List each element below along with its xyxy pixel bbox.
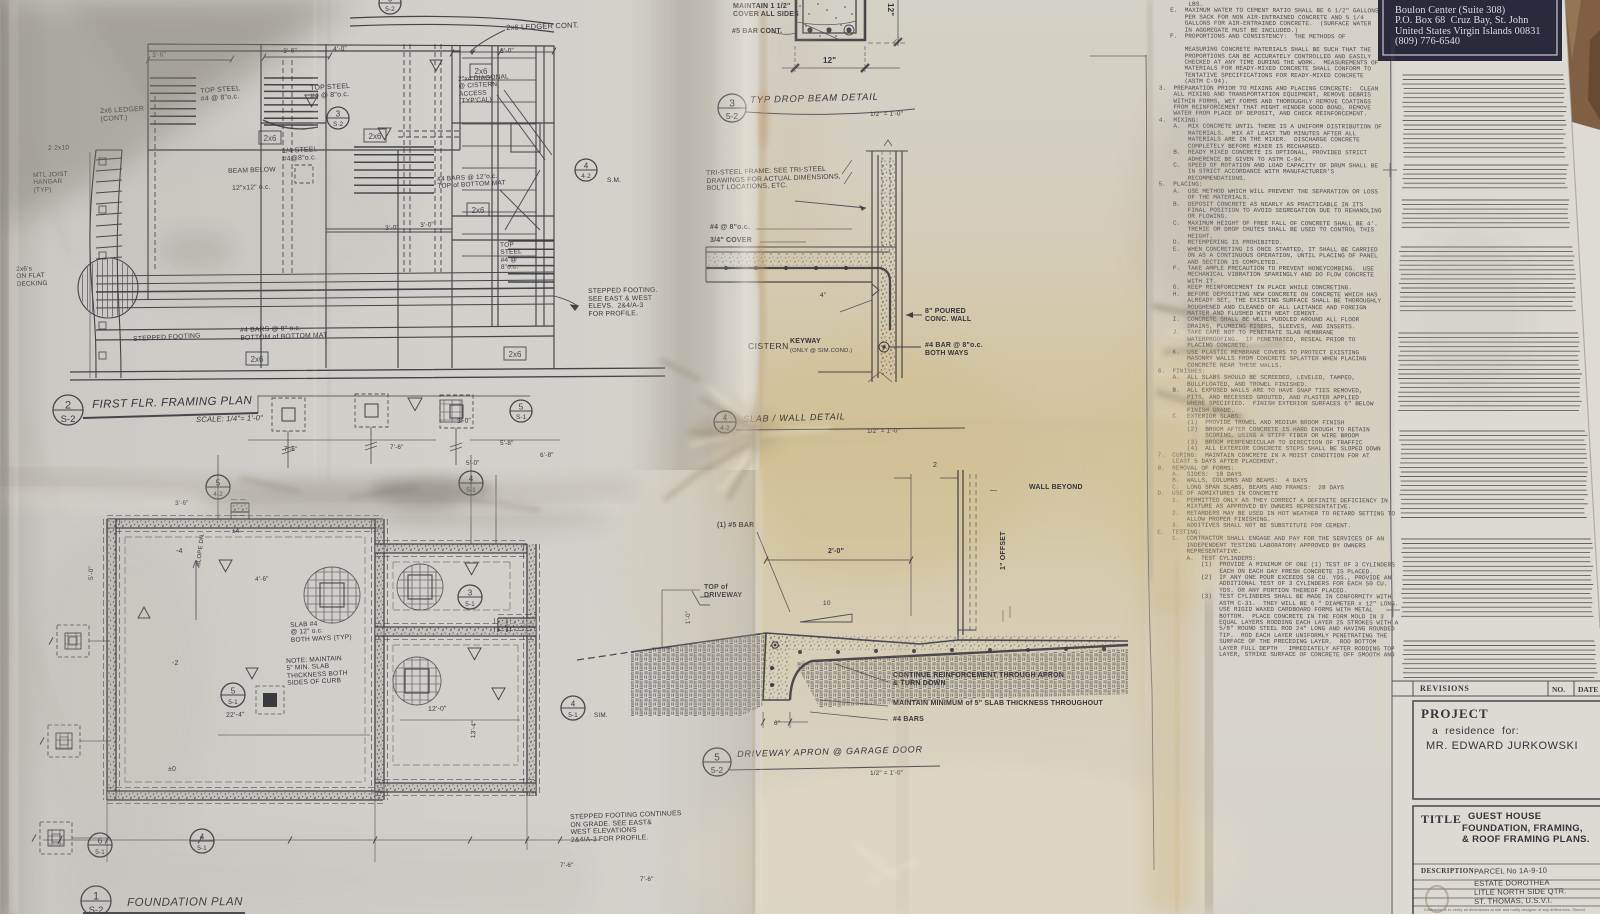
svg-text:5: 5 (231, 687, 236, 696)
svg-text:3: 3 (729, 99, 735, 110)
svg-text:S-1: S-1 (516, 414, 527, 421)
svg-text:1: 1 (93, 891, 99, 903)
svg-text:5-2: 5-2 (385, 6, 395, 13)
svg-text:5-1: 5-1 (466, 487, 476, 494)
svg-text:4: 4 (723, 414, 728, 423)
svg-text:5: 5 (519, 403, 524, 412)
svg-text:5-1: 5-1 (197, 845, 207, 852)
svg-text:2x6: 2x6 (509, 350, 522, 359)
svg-text:4-2: 4-2 (213, 491, 223, 498)
svg-text:2x6: 2x6 (251, 355, 264, 364)
svg-text:3: 3 (336, 110, 341, 119)
svg-text:4: 4 (571, 700, 576, 709)
svg-text:S·2: S·2 (333, 121, 344, 128)
svg-text:5: 5 (714, 753, 720, 764)
svg-text:5: 5 (216, 479, 221, 488)
svg-text:3: 3 (468, 589, 473, 598)
svg-text:2x6: 2x6 (264, 134, 277, 143)
svg-text:6: 6 (388, 0, 393, 4)
svg-text:5-2: 5-2 (711, 765, 724, 775)
svg-text:2: 2 (65, 400, 71, 412)
svg-text:S-2: S-2 (61, 414, 76, 425)
svg-text:5-1: 5-1 (95, 849, 105, 856)
svg-text:5-1: 5-1 (568, 712, 578, 719)
svg-text:2x6: 2x6 (369, 132, 382, 141)
svg-text:4: 4 (584, 162, 589, 171)
svg-text:5-1: 5-1 (465, 601, 475, 608)
svg-text:4: 4 (469, 475, 474, 484)
svg-text:4·2: 4·2 (720, 425, 730, 432)
svg-text:4·2: 4·2 (581, 173, 591, 180)
svg-text:2x6: 2x6 (472, 206, 485, 215)
svg-text:5-1: 5-1 (228, 699, 238, 706)
svg-text:4: 4 (200, 833, 205, 842)
svg-text:5-2: 5-2 (726, 111, 739, 121)
svg-text:6: 6 (98, 837, 103, 846)
